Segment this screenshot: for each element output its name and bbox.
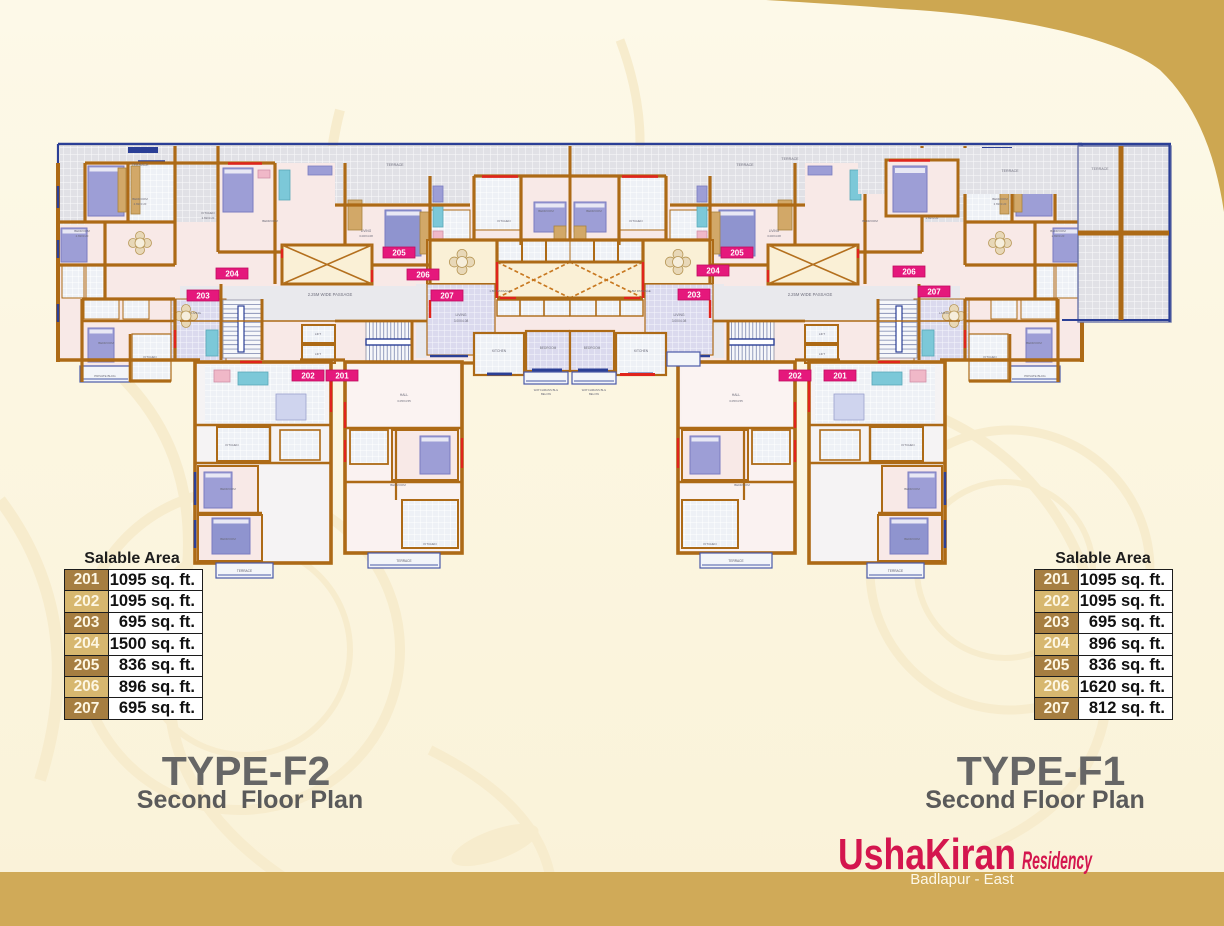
svg-text:BEDROOM: BEDROOM — [904, 487, 920, 491]
svg-text:TERRACE: TERRACE — [781, 157, 799, 161]
svg-text:KITCHEN: KITCHEN — [201, 211, 214, 215]
svg-text:3.05X4.55: 3.05X4.55 — [397, 399, 411, 403]
svg-text:TERRACE: TERRACE — [728, 559, 743, 563]
svg-text:TERRACE: TERRACE — [131, 163, 149, 167]
svg-text:KITCHEN: KITCHEN — [143, 355, 156, 359]
svg-text:TERRACE: TERRACE — [1001, 169, 1019, 173]
svg-text:TERRACE: TERRACE — [888, 569, 903, 573]
svg-text:204: 204 — [706, 267, 720, 276]
svg-text:LIVING: LIVING — [191, 311, 202, 315]
svg-text:2.69X3.20: 2.69X3.20 — [202, 216, 215, 220]
svg-text:3.00X4.08: 3.00X4.08 — [672, 319, 687, 323]
svg-text:TERRACE: TERRACE — [1091, 167, 1109, 171]
svg-text:206: 206 — [902, 268, 916, 277]
svg-text:KITCHEN: KITCHEN — [901, 443, 914, 447]
svg-text:HALL: HALL — [400, 393, 409, 397]
svg-text:TERRACE: TERRACE — [736, 163, 754, 167]
svg-text:LIVING: LIVING — [673, 313, 684, 317]
svg-text:KITCHEN: KITCHEN — [423, 542, 436, 546]
svg-text:3.00X4.08: 3.00X4.08 — [454, 319, 469, 323]
svg-text:1.8M PASSAGE: 1.8M PASSAGE — [629, 289, 651, 293]
svg-text:LIVING: LIVING — [939, 311, 950, 315]
svg-text:LIFT: LIFT — [819, 332, 825, 336]
svg-text:KITCHEN: KITCHEN — [492, 349, 507, 353]
svg-text:BEDROOM: BEDROOM — [390, 483, 406, 487]
svg-text:PRIVATE BLDG: PRIVATE BLDG — [94, 374, 116, 378]
svg-text:201: 201 — [335, 372, 349, 381]
svg-text:BEDROOM: BEDROOM — [904, 537, 920, 541]
svg-text:KITCHEN: KITCHEN — [497, 219, 510, 223]
svg-text:206: 206 — [416, 271, 430, 280]
svg-text:207: 207 — [440, 292, 454, 301]
svg-text:203: 203 — [687, 291, 701, 300]
svg-text:204: 204 — [225, 270, 239, 279]
svg-text:TERRACE: TERRACE — [237, 569, 252, 573]
svg-text:BEDROOM: BEDROOM — [1026, 341, 1042, 345]
svg-text:TERRACE: TERRACE — [386, 163, 404, 167]
svg-text:BEDROOM: BEDROOM — [586, 209, 602, 213]
svg-text:3.00X4.08: 3.00X4.08 — [767, 234, 781, 238]
svg-text:2.69X3.20: 2.69X3.20 — [1052, 234, 1065, 238]
svg-text:BEDROOM: BEDROOM — [992, 197, 1008, 201]
svg-text:BEDROOM: BEDROOM — [734, 483, 750, 487]
svg-text:BEDROOM: BEDROOM — [584, 346, 601, 350]
svg-text:BEDROOM: BEDROOM — [262, 219, 278, 223]
svg-text:202: 202 — [301, 372, 315, 381]
svg-text:2.69X3.20: 2.69X3.20 — [994, 202, 1007, 206]
svg-text:KITCHEN: KITCHEN — [983, 355, 996, 359]
svg-text:205: 205 — [730, 249, 744, 258]
svg-text:KITCHEN: KITCHEN — [629, 219, 642, 223]
svg-text:BEDROOM: BEDROOM — [540, 346, 557, 350]
svg-text:BEDROOM: BEDROOM — [538, 209, 554, 213]
svg-text:203: 203 — [196, 292, 210, 301]
svg-text:BEDROOM: BEDROOM — [1050, 229, 1066, 233]
svg-text:LIFT: LIFT — [315, 352, 321, 356]
svg-text:202: 202 — [788, 372, 802, 381]
svg-text:2.69X3.20: 2.69X3.20 — [134, 202, 147, 206]
svg-text:LIFT: LIFT — [819, 352, 825, 356]
svg-text:TERRACE: TERRACE — [396, 559, 411, 563]
svg-text:KITCHEN: KITCHEN — [225, 443, 238, 447]
svg-text:2.69X3.20: 2.69X3.20 — [76, 234, 89, 238]
svg-text:BELOW: BELOW — [589, 392, 599, 396]
svg-text:LIVING: LIVING — [361, 229, 372, 233]
svg-text:LIVING: LIVING — [455, 313, 466, 317]
svg-text:201: 201 — [833, 372, 847, 381]
svg-text:207: 207 — [927, 288, 941, 297]
svg-text:PRIVATE BLDG: PRIVATE BLDG — [1024, 374, 1046, 378]
svg-text:BEDROOM: BEDROOM — [220, 537, 236, 541]
svg-text:BEDROOM: BEDROOM — [74, 229, 90, 233]
svg-text:BEDROOM: BEDROOM — [132, 197, 148, 201]
svg-text:LIFT: LIFT — [315, 332, 321, 336]
svg-text:LIVING: LIVING — [769, 229, 780, 233]
svg-text:3.00X4.08: 3.00X4.08 — [359, 234, 373, 238]
svg-text:HALL: HALL — [732, 393, 741, 397]
svg-text:205: 205 — [392, 249, 406, 258]
svg-text:KITCHEN: KITCHEN — [634, 349, 649, 353]
svg-text:BELOW: BELOW — [541, 392, 551, 396]
svg-text:BEDROOM: BEDROOM — [862, 219, 878, 223]
svg-text:BEDROOM: BEDROOM — [220, 487, 236, 491]
svg-text:2.25M WIDE PASSAGE: 2.25M WIDE PASSAGE — [308, 292, 353, 297]
svg-text:1.8M PASSAGE: 1.8M PASSAGE — [489, 289, 511, 293]
svg-text:3.05X4.55: 3.05X4.55 — [729, 399, 743, 403]
svg-text:2.25M WIDE PASSAGE: 2.25M WIDE PASSAGE — [788, 292, 833, 297]
svg-text:KITCHEN: KITCHEN — [703, 542, 716, 546]
svg-text:BEDROOM: BEDROOM — [98, 341, 114, 345]
